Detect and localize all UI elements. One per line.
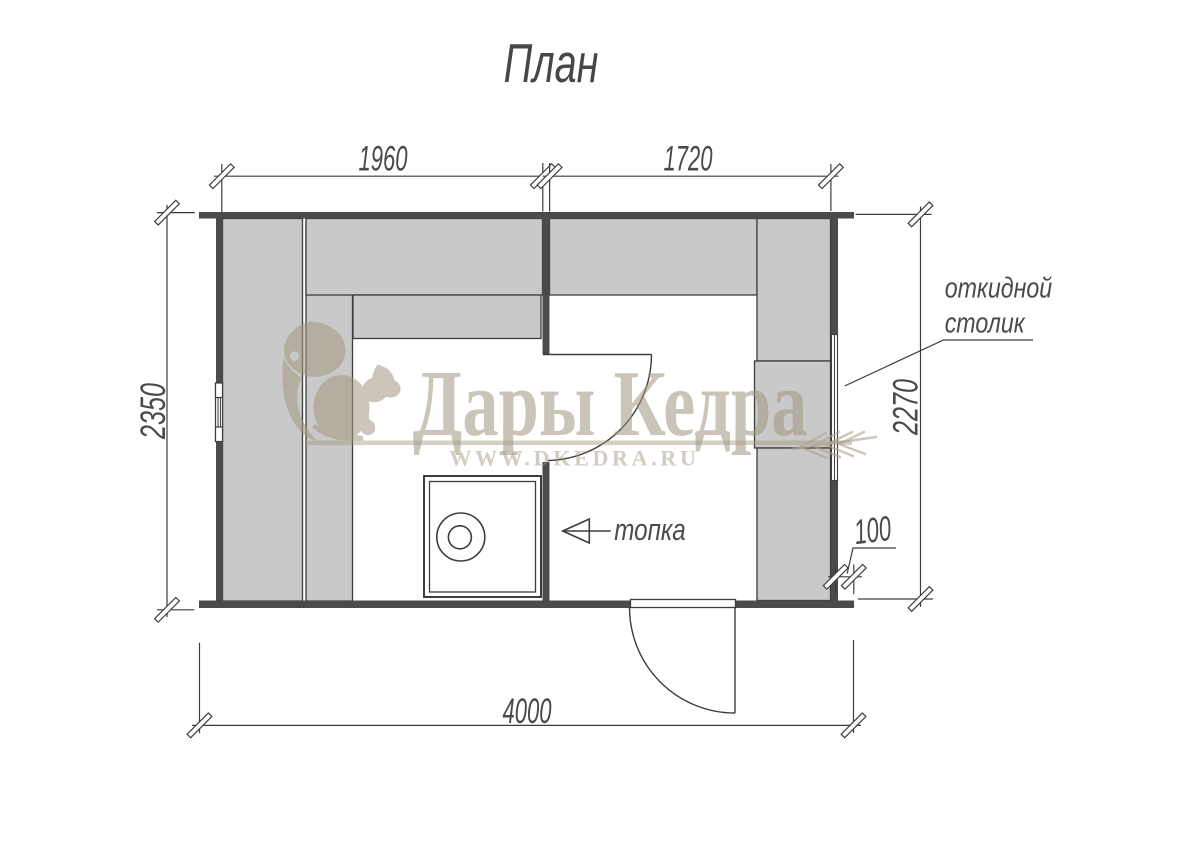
svg-text:1720: 1720 bbox=[663, 141, 713, 179]
svg-text:топка: топка bbox=[614, 512, 685, 547]
svg-text:столик: столик bbox=[945, 306, 1026, 339]
svg-text:откидной: откидной bbox=[945, 271, 1053, 304]
svg-text:100: 100 bbox=[852, 510, 894, 553]
svg-text:WWW.DKEDRA.RU: WWW.DKEDRA.RU bbox=[449, 446, 699, 471]
svg-text:4000: 4000 bbox=[502, 693, 552, 731]
svg-text:2350: 2350 bbox=[134, 383, 173, 440]
svg-text:2270: 2270 bbox=[887, 379, 926, 436]
svg-text:План: План bbox=[504, 34, 599, 95]
svg-text:1960: 1960 bbox=[358, 141, 408, 179]
svg-text:Дары Кедра: Дары Кедра bbox=[413, 352, 808, 456]
